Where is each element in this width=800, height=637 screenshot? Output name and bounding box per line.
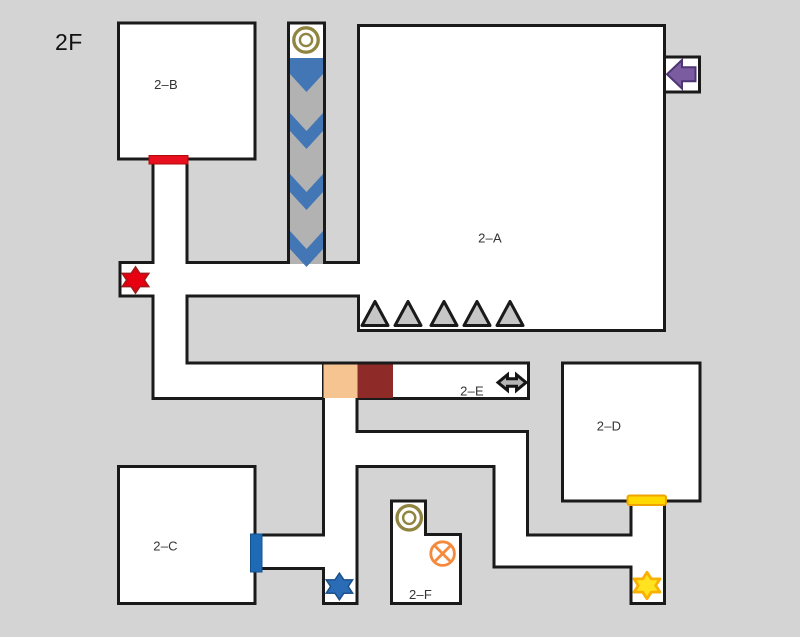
svg-text:2–A: 2–A	[478, 231, 502, 246]
svg-text:2–C: 2–C	[153, 539, 177, 554]
svg-text:2–F: 2–F	[409, 587, 432, 602]
svg-text:2F: 2F	[55, 29, 83, 55]
svg-text:2–E: 2–E	[460, 384, 484, 399]
svg-text:2–D: 2–D	[597, 419, 621, 434]
svg-text:2–B: 2–B	[154, 77, 178, 92]
